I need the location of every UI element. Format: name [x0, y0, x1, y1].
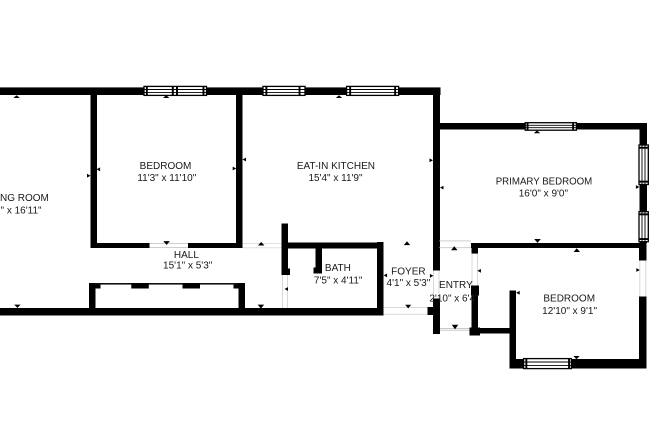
svg-text:" x 16'11": " x 16'11" — [1, 206, 43, 217]
svg-text:15'4" x 11'9": 15'4" x 11'9" — [308, 173, 363, 184]
svg-text:15'1" x 5'3": 15'1" x 5'3" — [163, 261, 213, 272]
svg-text:HALL: HALL — [174, 250, 199, 261]
svg-text:NG ROOM: NG ROOM — [0, 193, 49, 204]
svg-text:4'1" x 5'3": 4'1" x 5'3" — [387, 278, 431, 289]
svg-text:16'0" x 9'0": 16'0" x 9'0" — [519, 188, 569, 199]
svg-text:PRIMARY BEDROOM: PRIMARY BEDROOM — [496, 176, 593, 187]
svg-text:BEDROOM: BEDROOM — [543, 294, 595, 305]
svg-text:FOYER: FOYER — [391, 266, 425, 277]
svg-text:BATH: BATH — [325, 263, 351, 274]
svg-text:2'10" x 6'4": 2'10" x 6'4" — [429, 293, 479, 304]
svg-text:7'5" x 4'11": 7'5" x 4'11" — [314, 275, 363, 286]
svg-text:11'3" x 11'10": 11'3" x 11'10" — [137, 173, 196, 184]
svg-text:BEDROOM: BEDROOM — [140, 161, 192, 172]
svg-text:ENTRY: ENTRY — [439, 280, 473, 291]
svg-text:EAT-IN KITCHEN: EAT-IN KITCHEN — [297, 161, 375, 172]
svg-text:12'10" x 9'1": 12'10" x 9'1" — [542, 306, 597, 317]
